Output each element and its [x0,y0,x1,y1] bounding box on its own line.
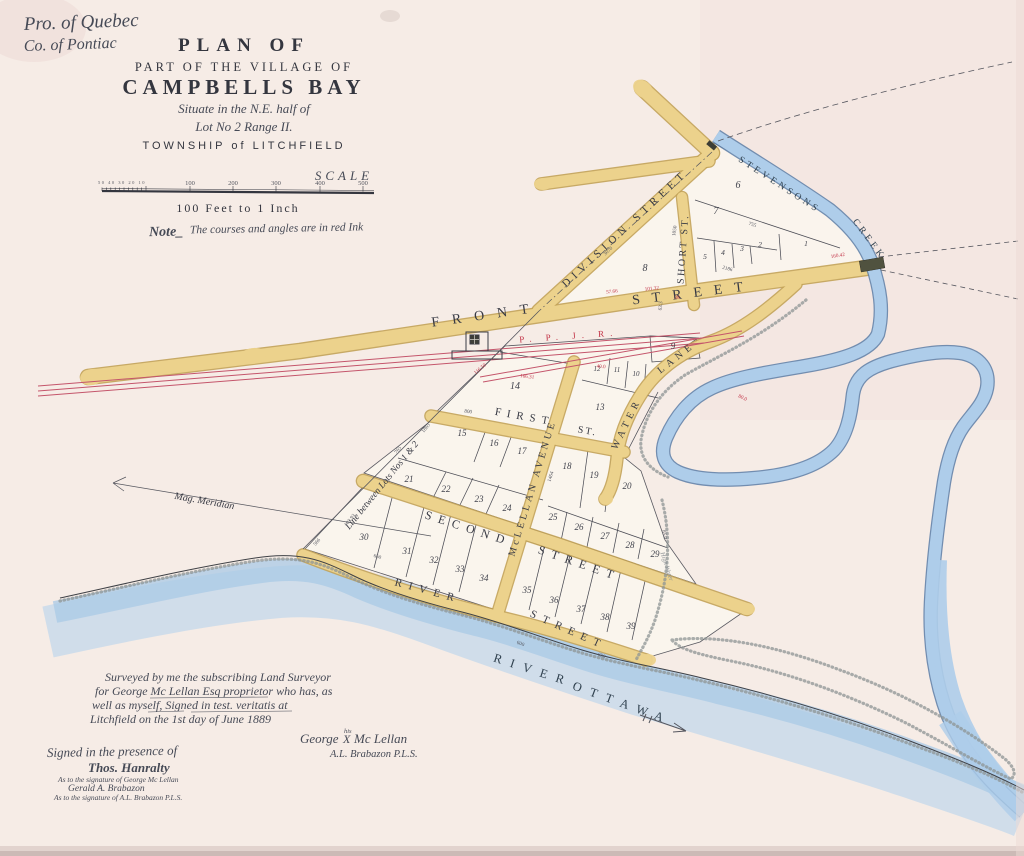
dimension-label-red: 38 [674,295,680,301]
lot-number: 30 [359,532,370,542]
scale-number: 300 [271,180,281,187]
lot-number: 35 [522,585,533,595]
scale-heading: SCALE [315,168,373,183]
scale-sub-numbers: 50 40 30 20 10 [98,180,146,185]
lot-number: 13 [596,402,606,412]
lot-number: 39 [626,621,637,631]
title-lot: Lot No 2 Range II. [194,119,292,134]
lot-number: 3 [739,244,744,253]
attestation-line: well as myself, Signed in test. veritati… [92,698,288,712]
witness-heading: Signed in the presence of [47,743,180,760]
scale-caption: 100 Feet to 1 Inch [176,201,299,215]
lot-number: 19 [590,470,600,480]
witness-note: As to the signature of A.L. Brabazon P.L… [53,793,182,802]
title-plan-of: PLAN OF [178,35,310,56]
lot-number: 29 [651,549,661,559]
lot-number: 36 [549,595,560,605]
lot-number: 15 [458,428,468,438]
dimension-label-red: 57.66 [606,288,619,295]
lot-number: 27 [601,531,611,541]
lot-number: 18 [563,461,573,471]
lot-number: 10 [633,370,641,378]
lot-number: 33 [455,564,466,574]
lot-number: 34 [479,573,490,583]
lot-number: 26 [575,522,585,532]
lot-number: 8 [643,263,648,274]
scan-edge-bottom-dark [0,851,1024,856]
lot-number: 17 [518,446,528,456]
lot-number: 31 [402,546,412,556]
signature-mark: X [342,732,351,746]
scale-number: 200 [228,180,238,187]
witness-note: As to the signature of George Mc Lellan [57,775,179,784]
lot-number: 5 [703,252,707,261]
dimension-label: 63.3 [658,301,665,311]
title-situate: Situate in the N.E. half of [178,101,312,116]
lot-number: 2 [758,240,762,249]
signature-surveyor: A.L. Brabazon P.L.S. [329,749,418,760]
scan-edge-right [1016,0,1024,856]
note-prefix: Note_ [148,225,183,241]
lot-number: 21 [405,474,414,484]
witness-name: Thos. Hanralty [88,760,170,775]
signature-principal-last: Mc Lellan [353,731,407,746]
lot-number: 22 [442,484,452,494]
signature-principal-first: George [300,731,339,746]
scale-number: 100 [185,180,195,187]
lot-number: 38 [600,612,611,622]
dimension-label-red: 40.0 [596,364,606,371]
lot-number: 24 [503,503,513,513]
title-part-of: PART OF THE VILLAGE OF [135,60,353,74]
attestation-line: Litchfield on the 1st day of June 1889 [89,712,271,726]
lot-number: 16 [490,438,500,448]
lot-number: 32 [429,555,440,565]
lot-number: 20 [623,481,633,491]
lot-number: 14 [510,381,520,392]
attestation-line: for George Mc Lellan Esq proprietor who … [95,684,333,698]
county-note: Co. of Pontiac [24,35,117,55]
title-name: CAMPBELLS BAY [122,75,365,99]
lot-number: 25 [549,512,559,522]
dimension-label: 800 [464,408,473,415]
lot-number: 4 [721,248,725,257]
lot-number: 28 [626,540,636,550]
lot-number: 1 [804,239,808,248]
province-note: Pro. of Quebec [22,10,139,35]
lot-number: 11 [614,366,620,374]
lot-number: 9 [671,341,676,351]
title-township: TOWNSHIP of LITCHFIELD [142,140,345,152]
lot-number: 6 [736,180,741,191]
paper-stain [380,10,400,22]
lot-number: 23 [475,494,485,504]
survey-plan-map: FRONTSTREETDIVISION STREETSHORT ST.FIRST… [0,0,1024,856]
lot-number: 37 [576,604,587,614]
attestation-line: Surveyed by me the subscribing Land Surv… [105,670,331,684]
